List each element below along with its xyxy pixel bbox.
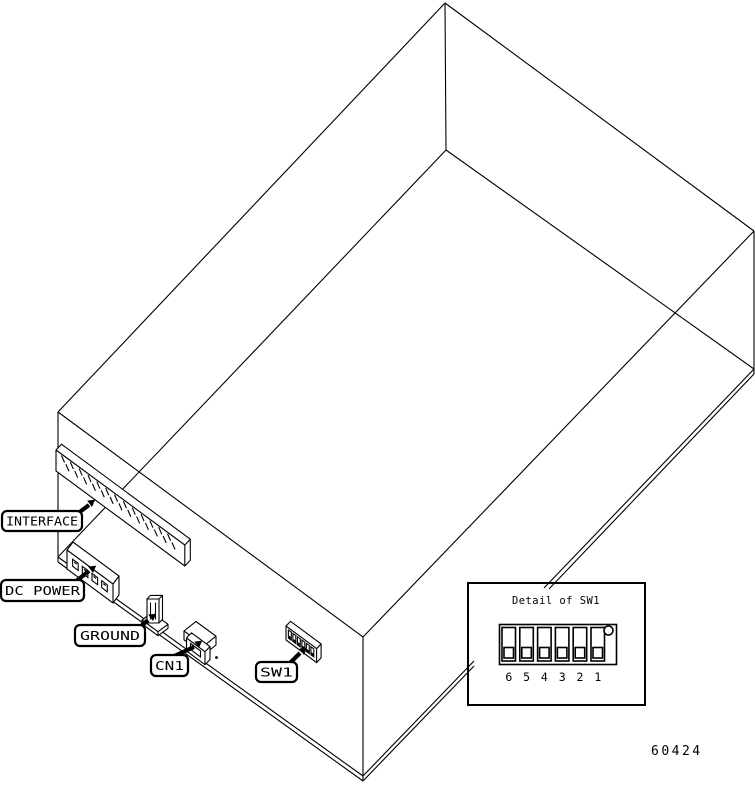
dip-number-3: 3 [559, 670, 566, 684]
detail-dip-slider [593, 648, 603, 659]
bottom-rim-right-with-breaks [363, 369, 754, 781]
cn1-label: CN1 [155, 658, 184, 673]
hidden-vertical-edge-back [445, 3, 446, 150]
dip-number-4: 4 [541, 670, 548, 684]
stray-dot [215, 656, 218, 659]
detail-dip-slider [575, 648, 585, 659]
sw1-dip-switch [286, 621, 321, 662]
base-line-right-b [549, 374, 754, 589]
detail-dip-pin1-mark [604, 626, 613, 635]
dip-number-5: 5 [523, 670, 530, 684]
bottom-rim-right-b [544, 369, 754, 588]
detail-dip-slider [504, 648, 514, 659]
top-edge-front-right [363, 231, 754, 637]
dip-number-6: 6 [505, 670, 512, 684]
top-edge-back-right [445, 3, 754, 231]
figure-page: INTERFACE DC POWER GROUND CN1 SW1 [0, 0, 755, 785]
top-edge-back-left [58, 3, 445, 412]
callout-sw1: SW1 [256, 648, 307, 682]
detail-dip-slider [522, 648, 532, 659]
top-edge-front-left [58, 412, 363, 637]
dip-number-2: 2 [577, 670, 584, 684]
dip-number-1: 1 [594, 670, 601, 684]
detail-inset-title: Detail of SW1 [512, 594, 600, 607]
interface-label: INTERFACE [6, 514, 78, 529]
detail-dip-slider [540, 648, 550, 659]
base-line-right-a [363, 666, 474, 781]
dc-power-label: DC POWER [5, 583, 81, 598]
hidden-bottom-edge-right [446, 150, 754, 369]
detail-inset: Detail of SW1 6 5 4 3 2 1 [468, 583, 645, 705]
figure-number: 60424 [651, 744, 703, 759]
figure-canvas: INTERFACE DC POWER GROUND CN1 SW1 [0, 0, 755, 785]
bottom-rim-right-a [363, 661, 474, 776]
callout-interface: INTERFACE [2, 500, 95, 531]
sw1-label: SW1 [260, 665, 293, 680]
ground-label: GROUND [80, 628, 140, 643]
detail-dip-slider [557, 648, 567, 659]
